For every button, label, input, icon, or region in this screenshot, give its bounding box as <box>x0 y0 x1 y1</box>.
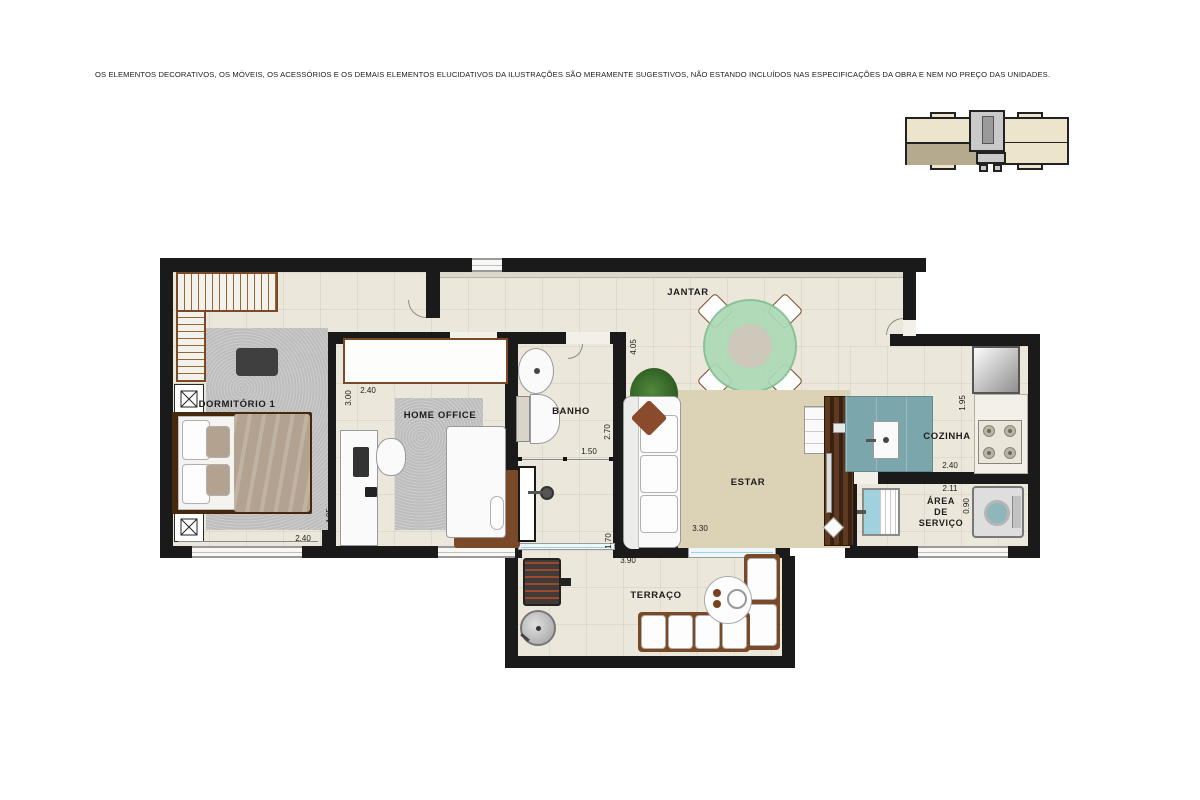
grill-icon <box>523 558 561 606</box>
dining-table-icon <box>703 299 797 393</box>
dim-label: 2.70 <box>603 414 613 450</box>
dim-label: 3.90 <box>610 556 646 566</box>
fridge-icon <box>972 346 1020 394</box>
keyplan-stair <box>993 164 1002 172</box>
pillow-accent <box>206 464 230 496</box>
bedroom-window <box>192 546 302 558</box>
keyplan-core <box>969 110 1005 152</box>
desk-icon <box>340 430 378 546</box>
plate-icon <box>727 589 747 609</box>
dim-label: 2.40 <box>932 461 968 471</box>
bed-icon <box>172 412 312 514</box>
pillow-accent <box>206 426 230 458</box>
shower-head-icon <box>540 486 554 500</box>
laptop-icon <box>365 487 377 497</box>
sofa-cushion <box>640 495 678 533</box>
room-label-estar: ESTAR <box>698 477 798 488</box>
keyplan-left-wing <box>905 117 979 165</box>
disclaimer-text: OS ELEMENTOS DECORATIVOS, OS MÓVEIS, OS … <box>95 70 1107 79</box>
shower-arm <box>528 491 542 494</box>
wall-dining-right <box>903 258 916 320</box>
table-center <box>728 324 772 368</box>
bench-cushion <box>641 615 666 649</box>
stove-icon <box>978 420 1022 464</box>
keyplan-right-wing <box>995 117 1069 165</box>
floorplan-page: OS ELEMENTOS DECORATIVOS, OS MÓVEIS, OS … <box>0 0 1200 800</box>
sofa-icon <box>623 396 681 548</box>
bath-door-opening <box>566 332 610 344</box>
keyplan-stair <box>979 164 988 172</box>
tv-icon <box>826 453 832 513</box>
daybed-icon <box>446 426 520 548</box>
room-label-banho: BANHO <box>531 406 611 417</box>
bench-cushion <box>747 604 777 646</box>
drain <box>534 368 540 374</box>
room-label-cozinha: COZINHA <box>897 431 997 442</box>
kitchen-sink-icon <box>873 421 899 459</box>
drain <box>883 437 889 443</box>
grill-knob <box>561 578 571 586</box>
drain <box>536 626 541 631</box>
wall-right <box>1028 334 1040 558</box>
terrace-sink-icon <box>520 610 556 646</box>
toilet-bowl <box>530 394 560 444</box>
wardrobe-icon <box>176 272 278 312</box>
keyplan-core-lower <box>976 152 1006 164</box>
keyplan-divider <box>997 142 1067 143</box>
washbasin-icon <box>518 348 554 394</box>
dim-label: 3.00 <box>344 380 354 416</box>
shower-glass-door <box>518 543 615 550</box>
laundry-tank-icon <box>862 488 900 536</box>
nightstand-icon <box>174 512 204 542</box>
tv-stand-icon <box>236 348 278 376</box>
dim-label: 4.05 <box>629 329 639 365</box>
faucet-icon <box>857 510 866 514</box>
dim-label: 1.95 <box>958 385 968 421</box>
tank-basin <box>864 490 880 534</box>
office-shelf-icon <box>343 338 508 384</box>
shower-niche <box>518 466 536 542</box>
bench-cushion <box>747 558 777 600</box>
tick <box>563 457 567 461</box>
hall-window <box>472 258 502 272</box>
sofa-cushion <box>640 455 678 493</box>
bed-cover <box>234 414 310 512</box>
toilet-tank <box>516 396 530 442</box>
bench-cushion <box>668 615 693 649</box>
dining-set <box>700 296 800 396</box>
dim-label: 1.50 <box>571 447 607 457</box>
wall-bedroom-entry <box>426 258 440 318</box>
faucet-icon <box>866 439 876 442</box>
entry-door-opening <box>903 320 916 336</box>
office-chair-icon <box>376 438 406 476</box>
wall-terrace-left <box>505 556 518 668</box>
wall-terrace-bottom <box>505 656 795 668</box>
bowl-icon <box>713 589 721 597</box>
dim-label: 2.40 <box>285 534 321 544</box>
washer-panel <box>1012 496 1021 528</box>
tank-ridges <box>880 490 898 534</box>
ottoman-icon <box>804 406 826 454</box>
ceiling-beam-line <box>440 272 903 278</box>
wall-top <box>160 258 926 272</box>
monitor-icon <box>353 447 369 477</box>
dim-label: 2.40 <box>350 386 386 396</box>
x-symbol-icon <box>175 513 203 541</box>
dim-label: 4.05 <box>325 498 335 534</box>
laundry-door-opening <box>852 472 878 484</box>
building-key-plan <box>880 105 1075 177</box>
room-label-home-office: HOME OFFICE <box>380 410 500 421</box>
dim-label: 0.90 <box>962 488 972 524</box>
keyplan-elevator <box>982 116 994 144</box>
dim-label: 1.70 <box>604 523 614 559</box>
terrace-table-icon <box>704 576 752 624</box>
room-label-dormitorio: DORMITÓRIO 1 <box>167 399 307 410</box>
tick <box>609 457 613 461</box>
laundry-window <box>918 546 1008 558</box>
washer-door <box>984 500 1010 526</box>
bowl-icon <box>713 600 721 608</box>
wall-terrace-right <box>782 556 795 668</box>
keyplan-highlighted-unit <box>907 142 977 165</box>
bolster-pillow <box>490 496 504 530</box>
room-label-terraco: TERRAÇO <box>606 590 706 601</box>
dim-label: 3.30 <box>682 524 718 534</box>
toilet-icon <box>516 394 560 444</box>
